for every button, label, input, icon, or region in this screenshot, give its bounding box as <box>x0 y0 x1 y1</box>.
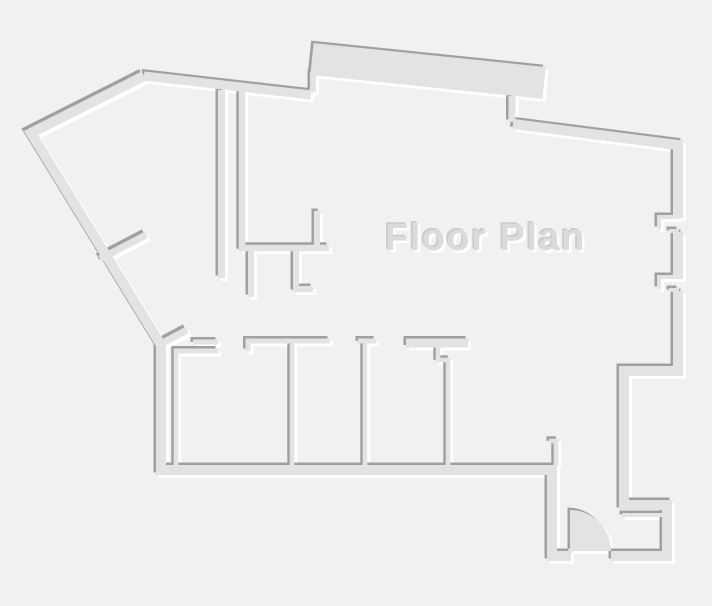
floor-plan-canvas: Floor Plan <box>0 0 712 606</box>
plan-title: Floor Plan <box>385 217 586 259</box>
floor-plan-screenshot: Floor Plan <box>0 0 712 606</box>
